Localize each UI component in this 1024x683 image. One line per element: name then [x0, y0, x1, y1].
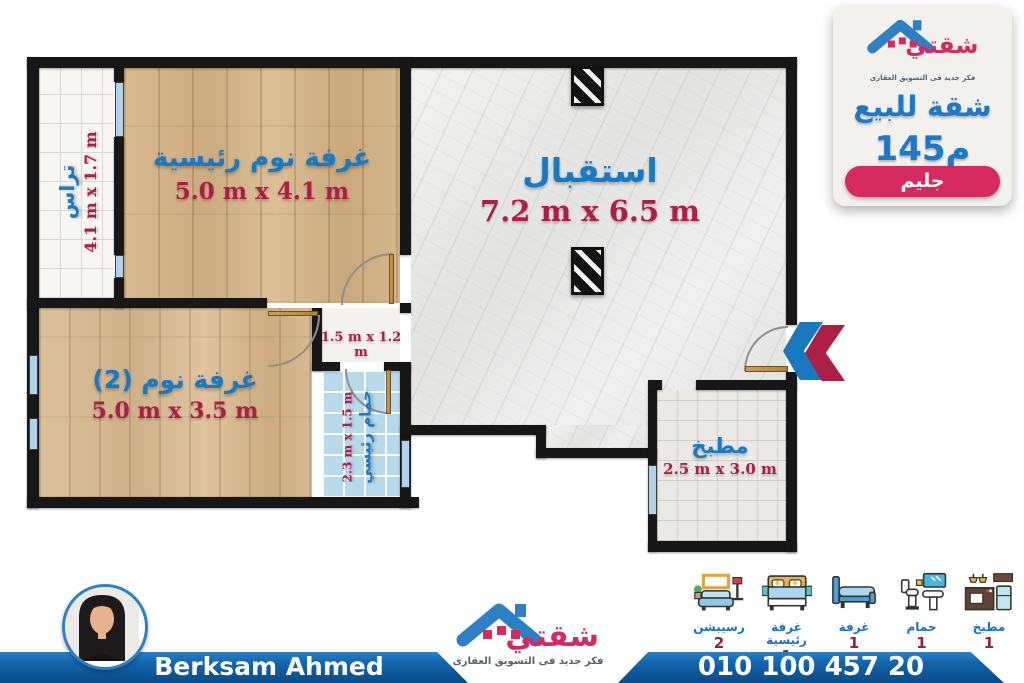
wall: [786, 372, 797, 552]
kitchen-icon: [964, 571, 1014, 617]
brand-name: شقتي: [505, 622, 599, 652]
footer-logo: شقتي فكر جديد فى التسويق العقارى: [428, 596, 628, 667]
bedroom-2-door: [268, 311, 318, 316]
agent-photo: [62, 584, 148, 670]
agent-portrait: [65, 587, 139, 661]
wall: [400, 57, 411, 255]
window: [648, 465, 657, 515]
reception-floor-ext: [546, 425, 648, 450]
kitchen-floor: [657, 390, 786, 541]
bathroom-door: [386, 370, 391, 414]
brand-tagline: فكر جديد فى التسويق العقارى: [833, 74, 1012, 82]
window: [29, 418, 38, 450]
legend-item-master-bedroom: غرفة رئيسية 1: [756, 571, 818, 665]
wall: [696, 380, 797, 390]
agent-name-bar: Berksam Ahmed: [0, 652, 468, 683]
window: [29, 355, 38, 395]
master-bedroom-door: [389, 254, 394, 304]
agent-name: Berksam Ahmed: [154, 652, 384, 681]
brand-tagline: فكر جديد فى التسويق العقارى: [428, 656, 628, 667]
wall: [648, 380, 662, 390]
listing-area: 145م: [833, 129, 1012, 169]
bedroom-icon: [829, 571, 879, 617]
wall: [648, 541, 797, 552]
wall: [312, 362, 340, 371]
info-panel: شقتي فكر جديد فى التسويق العقارى شقة للب…: [833, 6, 1012, 206]
bathroom-icon: [897, 571, 947, 617]
column: [571, 66, 604, 106]
living-room-icon: [694, 571, 744, 617]
wall: [114, 137, 124, 255]
phone-number: 010 100 457 20: [698, 652, 924, 682]
wall: [27, 57, 797, 68]
brand-logo: شقتي: [453, 596, 603, 654]
hallway-floor: [322, 308, 400, 362]
location-badge: جليم: [845, 166, 1000, 197]
real-estate-flyer: غرفة نوم رئيسية 5.0 m x 4.1 m استقبال 7.…: [0, 0, 1024, 683]
room-legend: رسيبشن 2 غرفة رئيسية 1: [688, 571, 1020, 665]
wall: [400, 425, 546, 435]
brand-logo: شقتي: [864, 14, 981, 59]
wall: [27, 497, 419, 508]
column: [571, 247, 604, 295]
legend-item-bathroom: حمام 1: [891, 571, 953, 665]
legend-item-bedroom: غرفة 1: [823, 571, 885, 665]
window: [115, 82, 124, 137]
legend-item-reception: رسيبشن 2: [688, 571, 750, 665]
phone-bar: 010 100 457 20: [618, 652, 1004, 683]
brand-name: شقتي: [905, 34, 978, 57]
entrance-door: [745, 366, 788, 372]
wall: [400, 303, 411, 313]
wall: [114, 68, 124, 82]
master-bedroom-icon: [762, 571, 812, 617]
terrace-floor: [39, 68, 114, 298]
legend-item-kitchen: مطبخ 1: [958, 571, 1020, 665]
window: [115, 255, 124, 278]
listing-title: شقة للبيع: [833, 90, 1012, 123]
wall: [536, 448, 657, 458]
wall: [786, 57, 797, 325]
wall: [27, 298, 267, 308]
window: [401, 440, 410, 488]
